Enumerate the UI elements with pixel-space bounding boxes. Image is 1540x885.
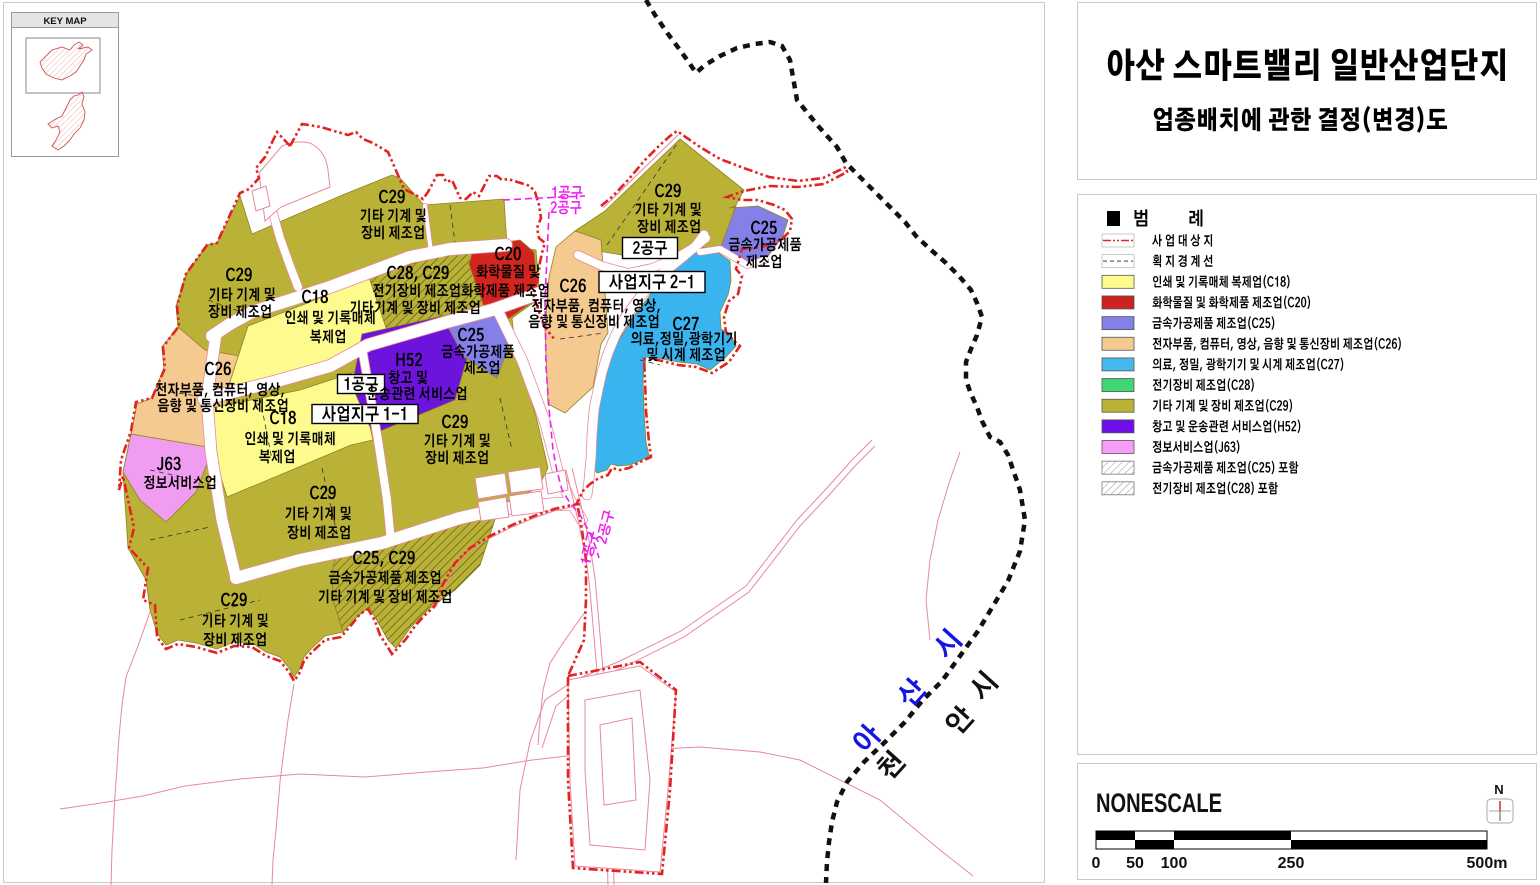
- svg-text:KEY MAP: KEY MAP: [43, 16, 87, 27]
- svg-text:500m: 500m: [1467, 855, 1508, 872]
- svg-text:0: 0: [1092, 855, 1101, 872]
- svg-text:100: 100: [1161, 855, 1188, 872]
- svg-text:NONESCALE: NONESCALE: [1096, 788, 1222, 818]
- svg-text:50: 50: [1126, 855, 1144, 872]
- svg-text:250: 250: [1278, 855, 1305, 872]
- svg-text:N: N: [1494, 782, 1503, 797]
